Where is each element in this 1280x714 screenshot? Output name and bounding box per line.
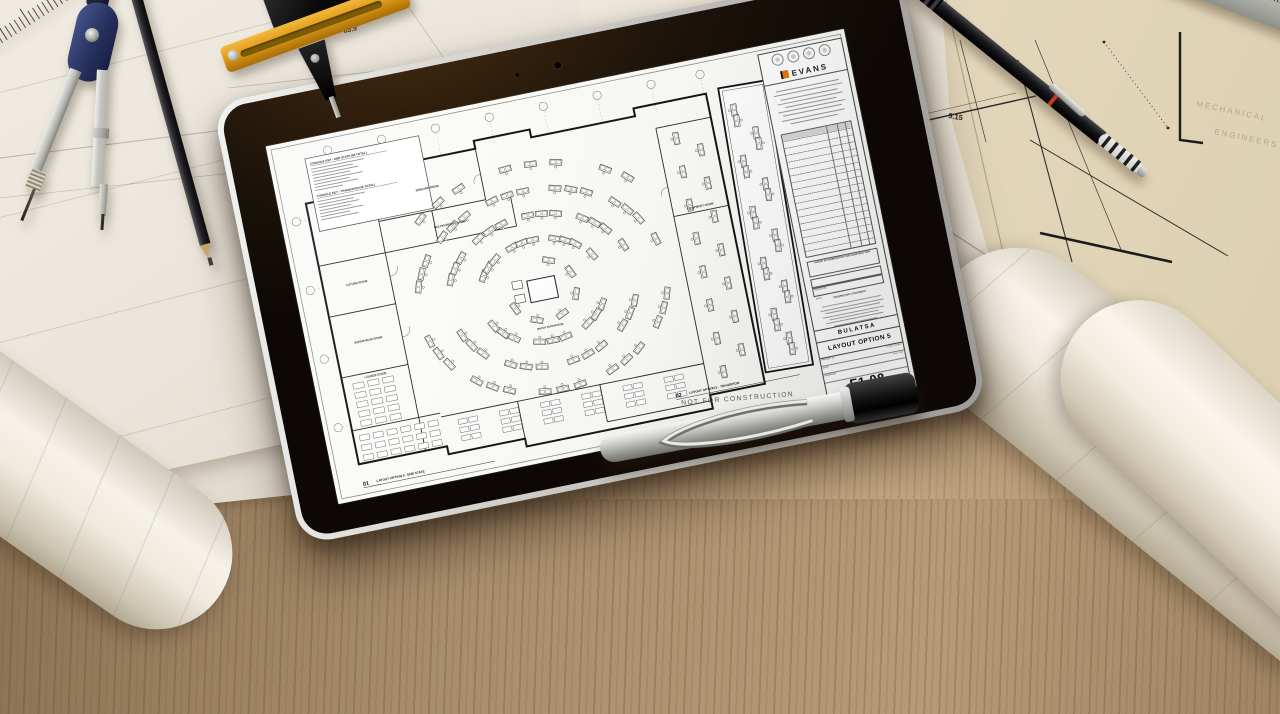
revision-table (781, 120, 877, 258)
compass-needle (20, 188, 36, 221)
brand-logo-icon (780, 70, 789, 79)
room-label: FUTURE ROOM (346, 279, 368, 287)
svg-text:LAYOUT OPTION 5 - END STATE: LAYOUT OPTION 5 - END STATE (376, 469, 425, 483)
camera-icon (552, 60, 563, 71)
compass-screw (85, 28, 99, 42)
svg-text:LAYOUT OPTION 5 - TRANSITION: LAYOUT OPTION 5 - TRANSITION (689, 381, 740, 395)
room-label: SUPERVISOR ROOM (354, 335, 383, 345)
drafting-compass (0, 0, 250, 266)
